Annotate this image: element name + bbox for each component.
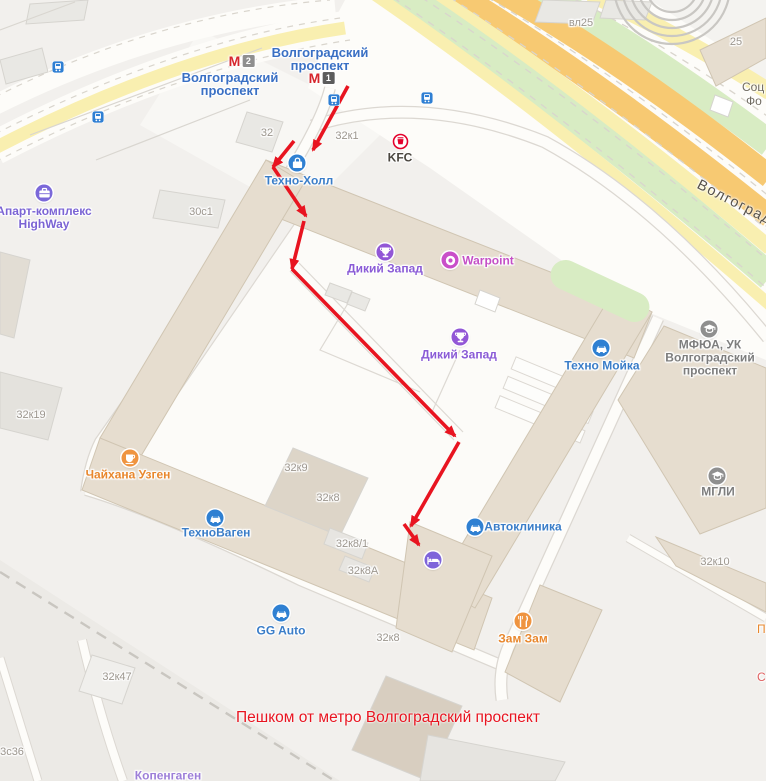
label-layer: KFCТехно-ХоллДикий ЗападWarpointДикий За… [0, 0, 766, 781]
poi-dikiy-zapad-2[interactable] [452, 329, 469, 346]
car-icon [593, 340, 610, 357]
route-annotation-text: Пешком от метро Волгоградский проспект [236, 709, 540, 727]
building-label-вл25: вл25 [569, 17, 593, 29]
bed-icon [425, 552, 442, 569]
poi-tehno-moyka[interactable] [593, 340, 610, 357]
road-name-label: Волгоградский проспект [694, 177, 766, 280]
poi-label-mfua[interactable]: МФЮА, УКВолгоградскийпроспект [665, 339, 754, 378]
metro-icon-volgogradskiy-prospekt-l2[interactable]: М2 [229, 54, 256, 68]
poi-warpoint[interactable] [442, 252, 459, 269]
trophy-icon [452, 329, 469, 346]
building-label-32к1: 32к1 [335, 130, 358, 142]
map-canvas[interactable]: KFCТехно-ХоллДикий ЗападWarpointДикий За… [0, 0, 766, 781]
edge-label-П: П [757, 622, 766, 636]
poi-hotel[interactable] [425, 552, 442, 569]
poi-kfc[interactable] [392, 133, 409, 150]
case-icon [36, 185, 53, 202]
car-icon [207, 510, 224, 527]
metro-m-logo: М [309, 72, 321, 84]
poi-label-avtoklinika[interactable]: Автоклиника [484, 521, 561, 534]
poi-label-dikiy-zapad-1[interactable]: Дикий Запад [347, 263, 423, 276]
poi-zam-zam[interactable] [515, 613, 532, 630]
donut-icon [442, 252, 459, 269]
building-label-32к9: 32к9 [284, 462, 307, 474]
building-label-32к47: 32к47 [102, 671, 131, 683]
tram-stop-icon[interactable] [52, 60, 64, 78]
tram-stop-icon[interactable] [421, 91, 433, 109]
metro-line-badge: 2 [241, 54, 255, 68]
metro-label-volgogradskiy-prospekt-l1[interactable]: Волгоградскийпроспект [272, 46, 369, 72]
metro-m-logo: М [229, 55, 241, 67]
metro-label-volgogradskiy-prospekt-l2[interactable]: Волгоградскийпроспект [182, 71, 279, 97]
poi-label-warpoint[interactable]: Warpoint [462, 255, 514, 268]
poi-label-zam-zam[interactable]: Зам Зам [498, 633, 547, 646]
poi-label-chaihana-uzgen[interactable]: Чайхана Узген [86, 469, 171, 482]
building-label-3с36: 3с36 [0, 746, 24, 758]
building-label-32к8А: 32к8А [348, 565, 379, 577]
metro-icon-volgogradskiy-prospekt-l1[interactable]: М1 [309, 71, 336, 85]
poi-label-apart-kompleks-highway[interactable]: Апарт-комплексHighWay [0, 205, 92, 231]
building-label-32к8/1: 32к8/1 [336, 538, 368, 550]
edge-label-С: С [757, 670, 766, 684]
tram-stop-icon[interactable] [92, 110, 104, 128]
poi-tehnovagen[interactable] [207, 510, 224, 527]
poi-apart-kompleks-highway[interactable] [36, 185, 53, 202]
metro-line-badge: 1 [321, 71, 335, 85]
poi-avtoklinika[interactable] [467, 519, 484, 536]
poi-label-kfc[interactable]: KFC [388, 152, 413, 165]
building-label-32к10: 32к10 [700, 556, 729, 568]
building-label-32к19: 32к19 [16, 409, 45, 421]
poi-label-mgli[interactable]: МГЛИ [701, 486, 735, 499]
poi-label-tehnovagen[interactable]: ТехноВаген [182, 527, 251, 540]
edge-label-Фо: Фо [746, 94, 762, 108]
poi-label-dikiy-zapad-2[interactable]: Дикий Запад [421, 349, 497, 362]
poi-tehno-holl[interactable] [289, 155, 306, 172]
poi-label-tehno-moyka[interactable]: Техно Мойка [564, 360, 639, 373]
poi-mfua[interactable] [701, 321, 718, 338]
car-icon [467, 519, 484, 536]
building-label-30с1: 30с1 [189, 206, 213, 218]
cap-icon [701, 321, 718, 338]
building-label-32: 32 [261, 127, 273, 139]
car-icon [273, 605, 290, 622]
tram-stop-icon[interactable] [328, 93, 340, 111]
bag-icon [289, 155, 306, 172]
cap-icon [709, 468, 726, 485]
building-label-25: 25 [730, 36, 742, 48]
building-label-32к8: 32к8 [316, 492, 339, 504]
poi-label-kopengagen[interactable]: Копенгаген [135, 770, 201, 781]
poi-label-gg-auto[interactable]: GG Auto [257, 625, 306, 638]
poi-mgli[interactable] [709, 468, 726, 485]
kfc-icon [392, 133, 409, 150]
trophy-icon [377, 244, 394, 261]
food-icon [515, 613, 532, 630]
poi-label-tehno-holl[interactable]: Техно-Холл [265, 175, 334, 188]
poi-chaihana-uzgen[interactable] [122, 450, 139, 467]
poi-dikiy-zapad-1[interactable] [377, 244, 394, 261]
cup-icon [122, 450, 139, 467]
edge-label-Соц: Соц [742, 80, 764, 94]
poi-gg-auto[interactable] [273, 605, 290, 622]
building-label-32к8: 32к8 [376, 632, 399, 644]
